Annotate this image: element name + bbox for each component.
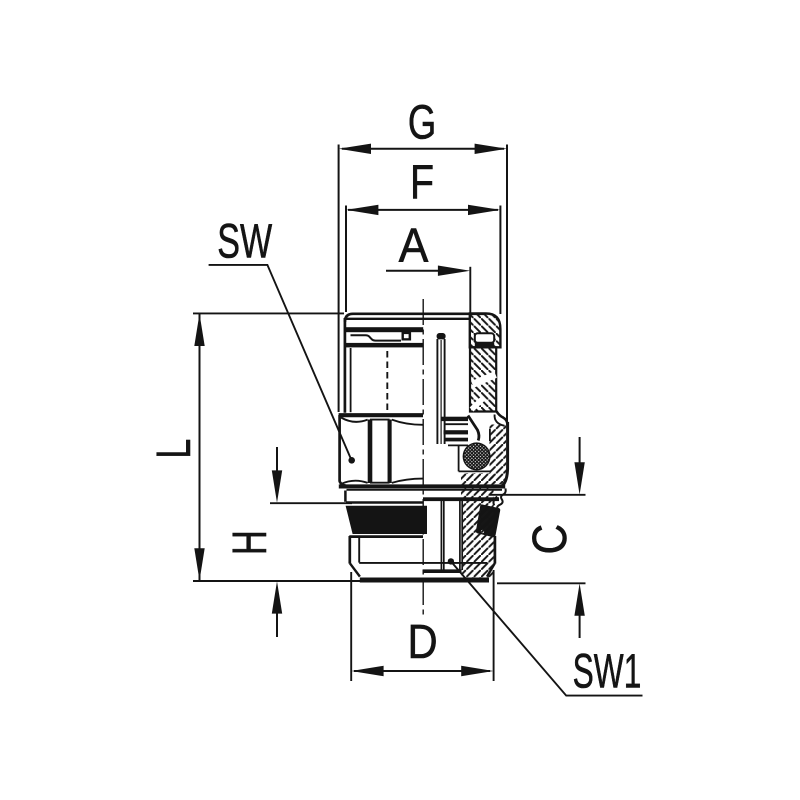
svg-text:H: H (222, 530, 276, 555)
svg-text:L: L (147, 439, 200, 459)
svg-text:SW: SW (217, 214, 272, 268)
svg-text:D: D (408, 614, 438, 668)
svg-text:F: F (410, 156, 434, 210)
svg-text:G: G (408, 96, 436, 150)
svg-text:SW1: SW1 (573, 644, 642, 698)
svg-text:C: C (523, 524, 577, 555)
svg-text:A: A (399, 218, 429, 272)
